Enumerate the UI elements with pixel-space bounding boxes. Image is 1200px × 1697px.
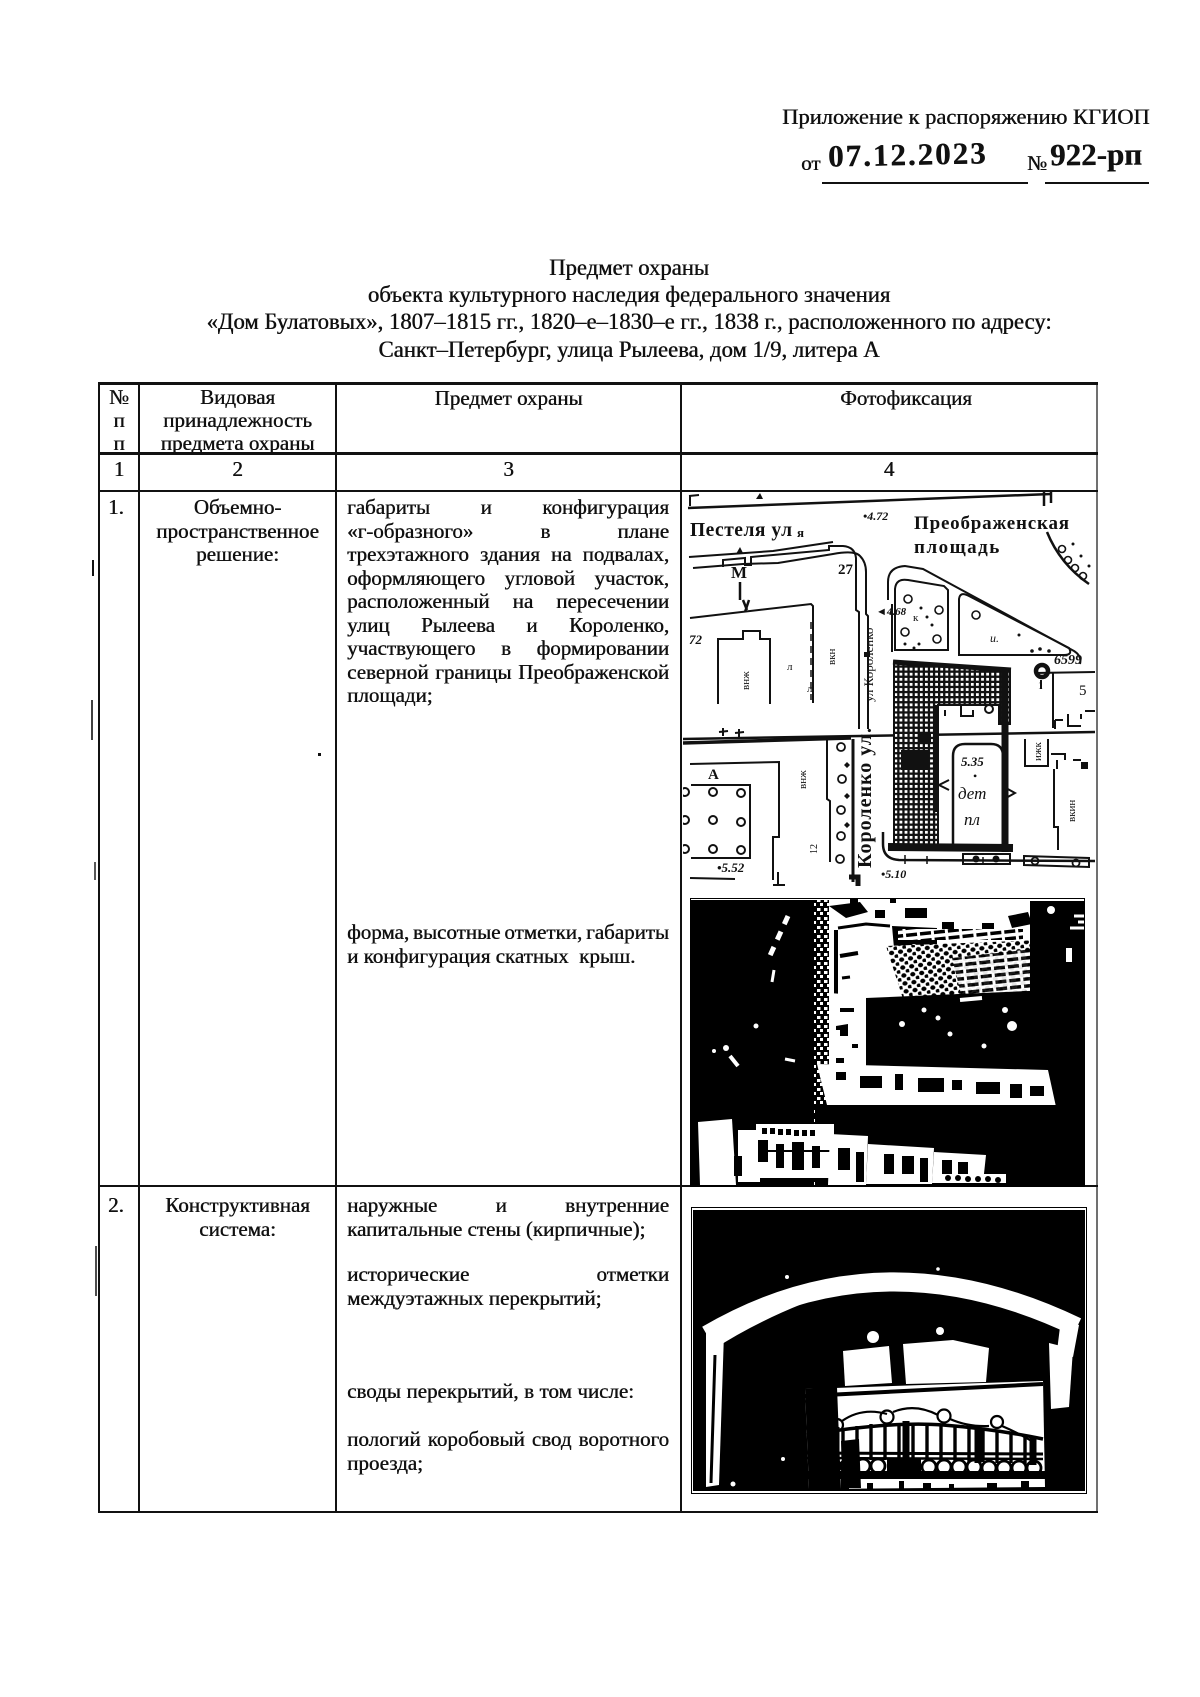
svg-text:•4.72: •4.72 bbox=[863, 509, 888, 523]
svg-text:л: л bbox=[807, 683, 813, 695]
svg-text:и.: и. bbox=[990, 631, 999, 645]
svg-text:Пестеля ул: Пестеля ул bbox=[690, 520, 793, 541]
svg-text:Короленко ул.: Короленко ул. bbox=[854, 727, 876, 868]
svg-text:•5.52: •5.52 bbox=[717, 860, 745, 875]
svg-text:вкн: вкн bbox=[826, 648, 838, 665]
svg-text:я: я bbox=[797, 525, 804, 540]
svg-text:27: 27 bbox=[838, 562, 854, 578]
svg-text:ижк: ижк bbox=[1032, 742, 1044, 761]
svg-text:5.35: 5.35 bbox=[961, 754, 984, 769]
svg-text:Преображенская: Преображенская bbox=[914, 513, 1070, 534]
svg-text:дет: дет bbox=[958, 784, 986, 803]
svg-text:внж: внж bbox=[740, 671, 752, 690]
svg-text:72: 72 bbox=[689, 632, 703, 647]
svg-text:12: 12 bbox=[809, 844, 820, 854]
svg-text:ул Короленко: ул Короленко bbox=[861, 628, 876, 702]
svg-text:◄4.68: ◄4.68 bbox=[876, 606, 907, 618]
svg-text:к: к bbox=[913, 612, 919, 624]
svg-text:л: л bbox=[787, 661, 793, 673]
svg-text:•: • bbox=[973, 769, 977, 783]
svg-text:М: М bbox=[731, 563, 747, 582]
svg-text:А: А bbox=[708, 767, 719, 783]
svg-text:•5.10: •5.10 bbox=[881, 867, 906, 881]
svg-text:внж: внж bbox=[797, 770, 809, 789]
svg-text:5: 5 bbox=[1079, 683, 1087, 699]
svg-text:вкин: вкин bbox=[1066, 800, 1078, 822]
svg-text:пл: пл bbox=[964, 810, 980, 829]
svg-text:1: 1 bbox=[1038, 681, 1043, 692]
svg-text:площадь: площадь bbox=[914, 537, 1001, 558]
svg-text:6599: 6599 bbox=[1054, 653, 1082, 668]
